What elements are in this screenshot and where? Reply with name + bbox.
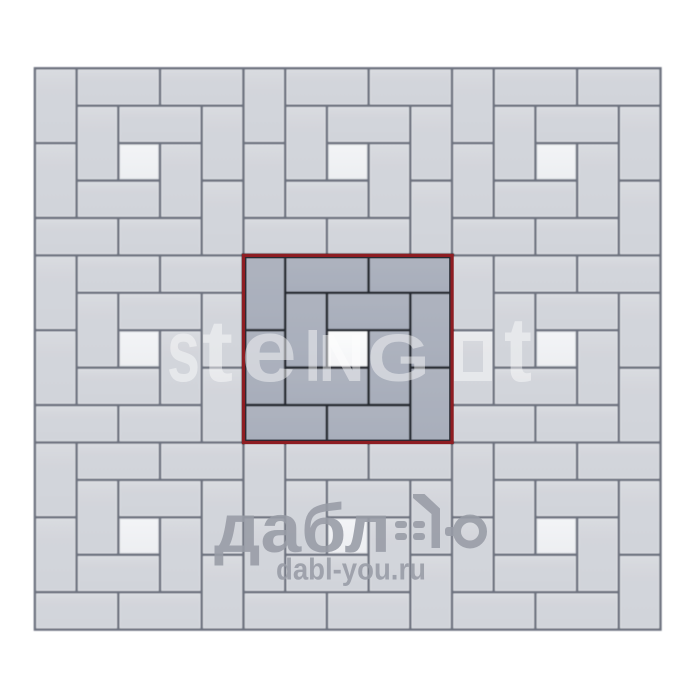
svg-text:s: s: [167, 301, 200, 400]
svg-text:t: t: [504, 299, 532, 401]
svg-text:dabl-you.ru: dabl-you.ru: [276, 552, 426, 587]
svg-text:e: e: [241, 301, 297, 400]
svg-text:N: N: [319, 321, 365, 396]
svg-text:G: G: [367, 321, 430, 396]
svg-text:t: t: [202, 301, 233, 400]
